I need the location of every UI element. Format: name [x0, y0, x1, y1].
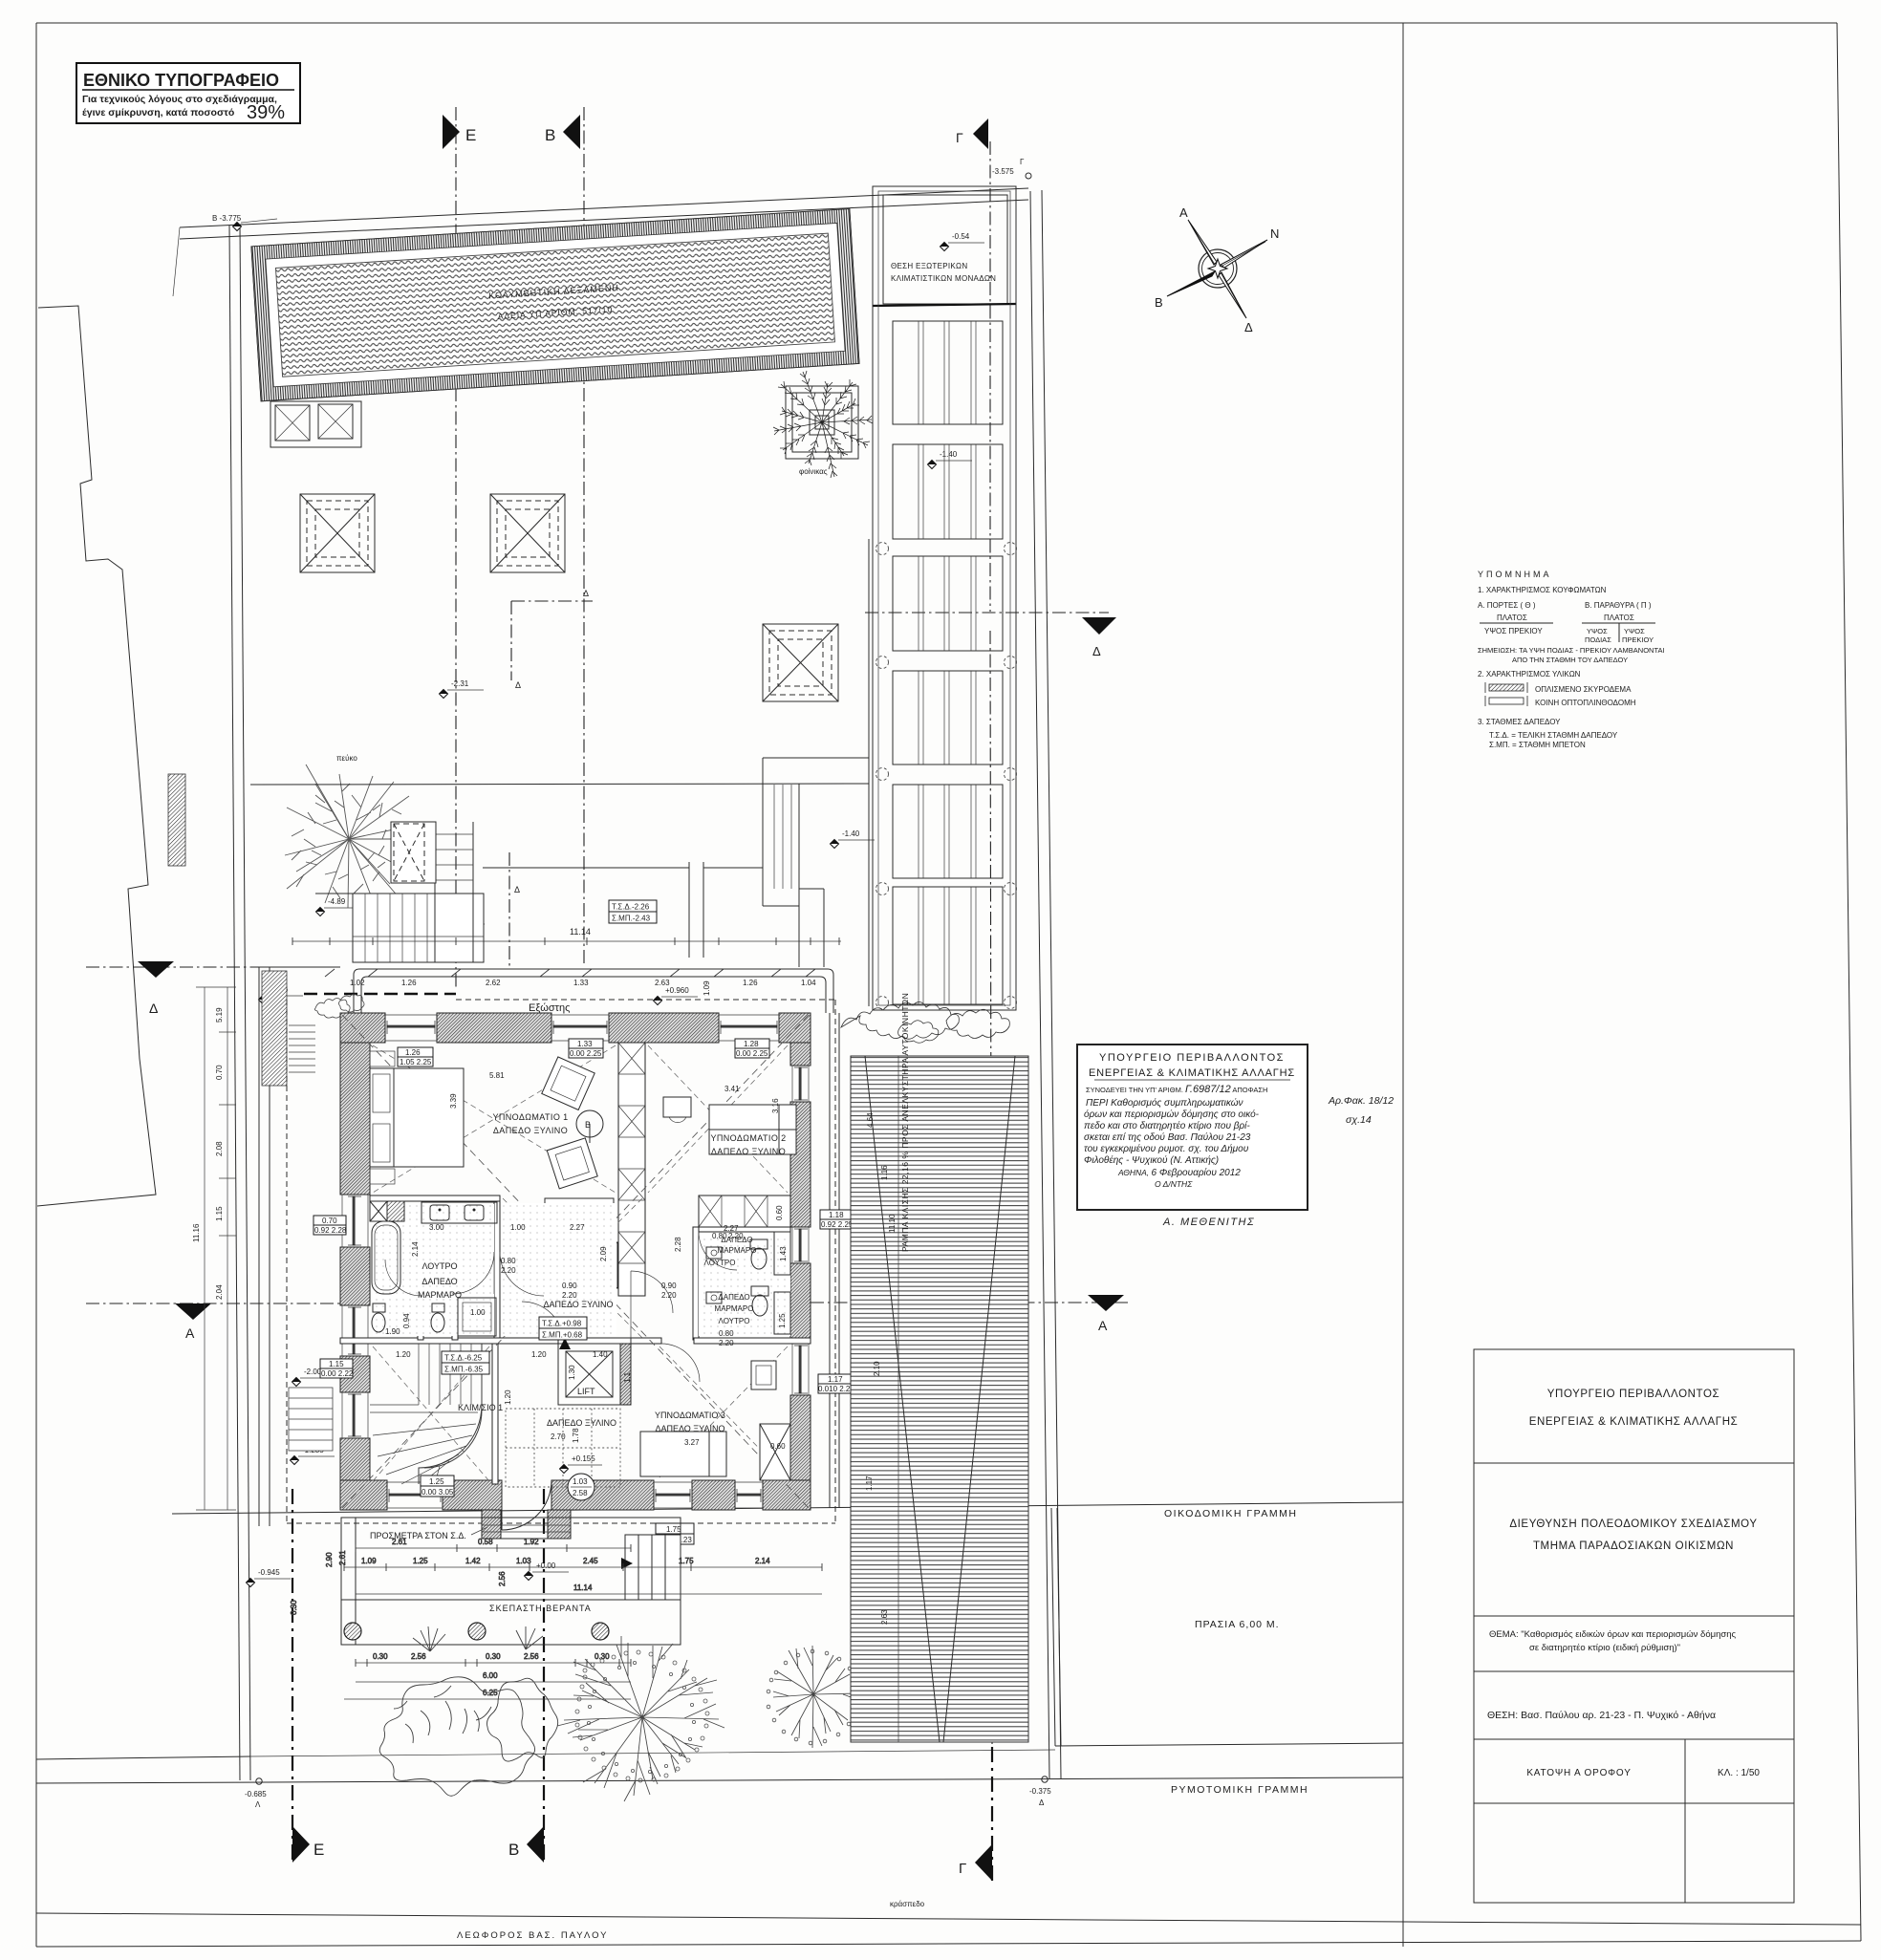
svg-text:0.60: 0.60	[775, 1205, 784, 1220]
svg-text:0.80: 0.80	[719, 1329, 734, 1338]
svg-text:2.10: 2.10	[873, 1361, 881, 1376]
svg-text:Ο Δ/ΝΤΗΣ: Ο Δ/ΝΤΗΣ	[1155, 1179, 1193, 1189]
svg-text:Αρ.Φακ. 18/12: Αρ.Φακ. 18/12	[1328, 1095, 1394, 1107]
svg-text:0.90: 0.90	[562, 1282, 577, 1290]
svg-text:1.43: 1.43	[779, 1246, 788, 1261]
svg-text:Α. ΜΕΘΕΝΙΤΗΣ: Α. ΜΕΘΕΝΙΤΗΣ	[1162, 1217, 1255, 1228]
svg-text:1.18: 1.18	[829, 1211, 844, 1219]
svg-text:Δ: Δ	[149, 1001, 158, 1016]
svg-text:6.00: 6.00	[483, 1671, 498, 1680]
svg-text:ΠΡΟΣΜΕΤΡΑ ΣΤΟΝ Σ.Δ.: ΠΡΟΣΜΕΤΡΑ ΣΤΟΝ Σ.Δ.	[370, 1531, 466, 1540]
svg-text:Δ: Δ	[583, 589, 589, 598]
svg-text:Λ: Λ	[255, 1800, 261, 1809]
svg-text:2.63: 2.63	[655, 979, 670, 987]
svg-text:LIFT: LIFT	[577, 1387, 595, 1396]
svg-text:ΕΝΕΡΓΕΙΑΣ & ΚΛΙΜΑΤΙΚΗΣ ΑΛΛΑΓΗΣ: ΕΝΕΡΓΕΙΑΣ & ΚΛΙΜΑΤΙΚΗΣ ΑΛΛΑΓΗΣ	[1089, 1067, 1295, 1079]
svg-text:2.61: 2.61	[392, 1538, 407, 1546]
svg-text:ΥΠΟΥΡΓΕΙΟ ΠΕΡΙΒΑΛΛΟΝΤΟΣ: ΥΠΟΥΡΓΕΙΟ ΠΕΡΙΒΑΛΛΟΝΤΟΣ	[1099, 1052, 1285, 1064]
svg-text:+0.960: +0.960	[665, 986, 689, 995]
svg-text:σχ.14: σχ.14	[1346, 1114, 1372, 1126]
svg-text:2.90: 2.90	[325, 1552, 334, 1567]
svg-text:-4.89: -4.89	[328, 897, 346, 906]
svg-text:11.16: 11.16	[192, 1223, 201, 1242]
svg-text:ΚΛΙΜΑΤΙΣΤΙΚΩΝ ΜΟΝΑΔΩΝ: ΚΛΙΜΑΤΙΣΤΙΚΩΝ ΜΟΝΑΔΩΝ	[891, 274, 996, 283]
svg-text:-3.575: -3.575	[992, 167, 1014, 176]
svg-text:0.80: 0.80	[501, 1257, 516, 1265]
svg-text:2.20: 2.20	[661, 1291, 677, 1300]
svg-text:2.56: 2.56	[411, 1652, 426, 1661]
svg-text:Δ: Δ	[515, 680, 521, 690]
svg-text:2.04: 2.04	[215, 1284, 224, 1300]
svg-text:ΔΑΠΕΔΟ ΞΥΛΙΝΟ: ΔΑΠΕΔΟ ΞΥΛΙΝΟ	[543, 1300, 613, 1309]
svg-text:ΜΑΡΜΑΡΟ: ΜΑΡΜΑΡΟ	[715, 1304, 754, 1313]
svg-text:Β -3.775: Β -3.775	[212, 214, 242, 223]
svg-text:39%: 39%	[247, 102, 285, 123]
svg-text:3.27: 3.27	[684, 1438, 700, 1447]
svg-text:ΟΙΚΟΔΟΜΙΚΗ ΓΡΑΜΜΗ: ΟΙΚΟΔΟΜΙΚΗ ΓΡΑΜΜΗ	[1164, 1508, 1297, 1519]
svg-text:0.58: 0.58	[478, 1538, 493, 1546]
svg-text:0.00 2.25: 0.00 2.25	[570, 1049, 602, 1058]
svg-text:ΥΠΝΟΔΩΜΑΤΙΟ 1: ΥΠΝΟΔΩΜΑΤΙΟ 1	[492, 1112, 568, 1122]
svg-text:2.62: 2.62	[486, 979, 501, 987]
svg-text:1.17: 1.17	[828, 1375, 843, 1384]
svg-text:0.70: 0.70	[322, 1217, 337, 1225]
svg-text:2.61: 2.61	[338, 1550, 347, 1565]
svg-text:ΥΠΝΟΔΩΜΑΤΙΟ 2: ΥΠΝΟΔΩΜΑΤΙΟ 2	[710, 1133, 786, 1143]
svg-text:2.20: 2.20	[728, 1232, 744, 1240]
svg-text:1.30: 1.30	[568, 1365, 576, 1380]
svg-text:ΛΟΥΤΡΟ: ΛΟΥΤΡΟ	[704, 1259, 736, 1267]
svg-text:3. ΣΤΑΘΜΕΣ ΔΑΠΕΔΟΥ: 3. ΣΤΑΘΜΕΣ ΔΑΠΕΔΟΥ	[1478, 718, 1561, 726]
svg-text:ΣΥΝΟΔΕΥΕΙ ΤΗΝ ΥΠ' ΑΡΙΘΜ. Γ.698: ΣΥΝΟΔΕΥΕΙ ΤΗΝ ΥΠ' ΑΡΙΘΜ. Γ.6987/12 ΑΠΟΦΑ…	[1086, 1084, 1267, 1095]
svg-text:2.45: 2.45	[583, 1557, 598, 1565]
svg-text:Δ: Δ	[1092, 644, 1101, 658]
svg-text:2.09: 2.09	[599, 1246, 608, 1261]
svg-text:όρων και περιορισμών δόμησης σ: όρων και περιορισμών δόμησης στο οικό-	[1084, 1109, 1260, 1120]
svg-text:1.25: 1.25	[429, 1477, 444, 1486]
svg-text:ΑΘΗΝΑ, 6 Φεβρουαρίου 2012: ΑΘΗΝΑ, 6 Φεβρουαρίου 2012	[1117, 1167, 1241, 1178]
svg-text:ΥΨΟΣ ΠΡΕΚΙΟΥ: ΥΨΟΣ ΠΡΕΚΙΟΥ	[1484, 627, 1543, 635]
svg-text:ΘΕΣΗ ΕΞΩΤΕΡΙΚΩΝ: ΘΕΣΗ ΕΞΩΤΕΡΙΚΩΝ	[891, 262, 967, 270]
svg-text:Β: Β	[545, 126, 555, 144]
svg-text:Σ.ΜΠ. = ΣΤΑΘΜΗ ΜΠΕΤΟΝ: Σ.ΜΠ. = ΣΤΑΘΜΗ ΜΠΕΤΟΝ	[1489, 741, 1586, 749]
svg-text:Τ.Σ.Δ.-2.26: Τ.Σ.Δ.-2.26	[612, 903, 650, 912]
svg-text:Ε: Ε	[313, 1841, 324, 1859]
svg-text:πεύκο: πεύκο	[336, 754, 357, 763]
svg-text:ΔΑΠΕΔΟ ΞΥΛΙΝΟ: ΔΑΠΕΔΟ ΞΥΛΙΝΟ	[711, 1147, 786, 1156]
svg-text:1.09: 1.09	[361, 1557, 377, 1565]
svg-text:ΕΘΝΙΚΟ ΤΥΠΟΓΡΑΦΕΙΟ: ΕΘΝΙΚΟ ΤΥΠΟΓΡΑΦΕΙΟ	[83, 71, 279, 90]
svg-text:ΔΙΕΥΘΥΝΣΗ ΠΟΛΕΟΔΟΜΙΚΟΥ ΣΧΕΔΙΑΣ: ΔΙΕΥΘΥΝΣΗ ΠΟΛΕΟΔΟΜΙΚΟΥ ΣΧΕΔΙΑΣΜΟΥ	[1509, 1518, 1757, 1530]
svg-text:+0.155: +0.155	[572, 1454, 595, 1463]
svg-text:1.20: 1.20	[504, 1389, 512, 1405]
svg-text:Τ.Σ.Δ. = ΤΕΛΙΚΗ ΣΤΑΘΜΗ ΔΑΠΕ: Τ.Σ.Δ. = ΤΕΛΙΚΗ ΣΤΑΘΜΗ ΔΑΠΕΔΟΥ	[1489, 731, 1618, 740]
svg-text:-2.31: -2.31	[451, 679, 469, 688]
svg-text:0.00 2.22: 0.00 2.22	[321, 1369, 354, 1378]
svg-text:ΚΛΙΜ/ΣΙΟ 1: ΚΛΙΜ/ΣΙΟ 1	[458, 1403, 503, 1412]
svg-text:ΘΕΜΑ: "Καθορισμός ειδικών όρ: ΘΕΜΑ: "Καθορισμός ειδικών όρων και περιο…	[1489, 1629, 1737, 1640]
svg-text:2.27: 2.27	[570, 1223, 585, 1232]
svg-text:Εξώστης: Εξώστης	[529, 1002, 570, 1014]
svg-text:ΥΨΟΣ: ΥΨΟΣ	[1624, 627, 1645, 635]
svg-text:2.63: 2.63	[880, 1609, 889, 1625]
svg-text:3.16: 3.16	[771, 1098, 780, 1113]
svg-text:ΛΕΩΦΟΡΟΣ ΒΑΣ. ΠΑΥΛΟΥ: ΛΕΩΦΟΡΟΣ ΒΑΣ. ΠΑΥΛΟΥ	[457, 1930, 609, 1941]
svg-text:2.56: 2.56	[524, 1652, 539, 1661]
svg-text:3.41: 3.41	[724, 1085, 740, 1093]
svg-text:1.26: 1.26	[401, 979, 417, 987]
svg-text:Δ: Δ	[514, 885, 520, 894]
svg-text:2.58: 2.58	[573, 1489, 588, 1497]
svg-text:0.94: 0.94	[402, 1313, 411, 1328]
svg-text:ΠΡΕΚΙΟΥ: ΠΡΕΚΙΟΥ	[1622, 635, 1654, 644]
svg-text:Α: Α	[1098, 1318, 1108, 1333]
svg-text:0.30: 0.30	[486, 1652, 501, 1661]
svg-text:+0.00: +0.00	[536, 1562, 556, 1570]
svg-text:1.09: 1.09	[703, 980, 711, 996]
svg-text:1.78: 1.78	[572, 1428, 580, 1443]
svg-text:5.81: 5.81	[489, 1071, 505, 1080]
svg-text:11.14: 11.14	[573, 1583, 593, 1592]
svg-text:ΠΡΑΣΙΑ 6,00 Μ.: ΠΡΑΣΙΑ 6,00 Μ.	[1195, 1619, 1280, 1630]
svg-text:Γ: Γ	[959, 1861, 966, 1877]
svg-text:Β. ΠΑΡΑΘΥΡΑ ( Π ): Β. ΠΑΡΑΘΥΡΑ ( Π )	[1585, 601, 1652, 610]
svg-text:Ν: Ν	[1270, 226, 1279, 241]
svg-text:2. ΧΑΡΑΚΤΗΡΙΣΜΟΣ ΥΛΙΚΩΝ: 2. ΧΑΡΑΚΤΗΡΙΣΜΟΣ ΥΛΙΚΩΝ	[1478, 670, 1581, 678]
svg-text:ΜΑΡΜΑΡΟ: ΜΑΡΜΑΡΟ	[418, 1290, 462, 1300]
svg-text:ΡΑΜΠΑ ΚΛΙΣΗΣ 22,16 % ΠΡΟΣ ΑΝΕΛ: ΡΑΜΠΑ ΚΛΙΣΗΣ 22,16 % ΠΡΟΣ ΑΝΕΛΚΥΣΤΗΡΑ ΑΥ…	[900, 993, 910, 1252]
svg-text:0.92 2.28: 0.92 2.28	[314, 1226, 347, 1235]
svg-text:0.30: 0.30	[595, 1652, 610, 1661]
svg-text:Ε: Ε	[465, 126, 476, 144]
svg-text:0.80: 0.80	[712, 1232, 727, 1240]
svg-text:1.20: 1.20	[396, 1350, 411, 1359]
svg-text:1.40: 1.40	[593, 1350, 608, 1359]
svg-text:1.28: 1.28	[744, 1040, 759, 1048]
svg-text:ΟΠΛΙΣΜΕΝΟ ΣΚΥΡΟΔΕΜΑ: ΟΠΛΙΣΜΕΝΟ ΣΚΥΡΟΔΕΜΑ	[1535, 685, 1632, 694]
svg-text:ΔΑΠΕΔΟ: ΔΑΠΕΔΟ	[422, 1277, 457, 1286]
svg-text:Β: Β	[508, 1841, 519, 1859]
svg-text:φοίνικας: φοίνικας	[799, 467, 828, 476]
svg-text:1.15: 1.15	[215, 1206, 224, 1221]
svg-text:2.08: 2.08	[215, 1141, 224, 1156]
svg-text:ΠΛΑΤΟΣ: ΠΛΑΤΟΣ	[1497, 614, 1527, 622]
svg-text:2.14: 2.14	[411, 1241, 420, 1257]
svg-text:0.00 2.25: 0.00 2.25	[736, 1049, 768, 1058]
svg-text:Σ.ΜΠ.-2.43: Σ.ΜΠ.-2.43	[612, 915, 651, 923]
svg-text:πεδο και στο διατηρητέο κτίριο: πεδο και στο διατηρητέο κτίριο που βρί-	[1084, 1120, 1250, 1131]
svg-text:-0.54: -0.54	[952, 232, 970, 241]
svg-text:2.70: 2.70	[551, 1432, 566, 1441]
svg-text:ΥΠΟΜΝΗΜΑ: ΥΠΟΜΝΗΜΑ	[1478, 570, 1552, 579]
svg-text:Γ: Γ	[956, 130, 963, 145]
svg-text:Α: Α	[1179, 205, 1188, 220]
svg-text:ΚΑΤΟΨΗ Α ΟΡΟΦΟΥ: ΚΑΤΟΨΗ Α ΟΡΟΦΟΥ	[1526, 1768, 1631, 1778]
svg-text:11.14: 11.14	[570, 927, 591, 937]
svg-text:ΘΕΣΗ: Βασ. Παύλου αρ. 21-23: ΘΕΣΗ: Βασ. Παύλου αρ. 21-23 - Π. Ψυχικό …	[1487, 1710, 1716, 1721]
svg-text:1.26: 1.26	[405, 1048, 421, 1057]
svg-text:1.00: 1.00	[510, 1223, 526, 1232]
svg-text:Γ: Γ	[1020, 158, 1025, 166]
svg-text:Α. ΠΟΡΤΕΣ ( Θ ): Α. ΠΟΡΤΕΣ ( Θ )	[1478, 601, 1536, 610]
svg-text:του εγκεκριμένου ρυμοτ. σχ. το: του εγκεκριμένου ρυμοτ. σχ. του Δήμου	[1084, 1143, 1249, 1154]
svg-text:2.28: 2.28	[674, 1237, 682, 1252]
svg-text:ΕΝΕΡΓΕΙΑΣ & ΚΛΙΜΑΤΙΚΗΣ ΑΛΛΑΓΗΣ: ΕΝΕΡΓΕΙΑΣ & ΚΛΙΜΑΤΙΚΗΣ ΑΛΛΑΓΗΣ	[1529, 1416, 1739, 1428]
svg-text:1.42: 1.42	[465, 1557, 481, 1565]
svg-text:ΥΠΝΟΔΩΜΑΤΙΟ 3: ΥΠΝΟΔΩΜΑΤΙΟ 3	[655, 1411, 725, 1420]
svg-text:-0.375: -0.375	[1029, 1787, 1051, 1796]
svg-text:2.20: 2.20	[501, 1266, 516, 1275]
svg-text:1.17: 1.17	[865, 1475, 874, 1491]
svg-text:1.03: 1.03	[573, 1477, 588, 1486]
svg-text:0.00 3.05: 0.00 3.05	[422, 1488, 454, 1497]
svg-text:1.02: 1.02	[350, 979, 365, 987]
svg-text:1. ΧΑΡΑΚΤΗΡΙΣΜΟΣ ΚΟΥΦΩΜΑΤΩΝ: 1. ΧΑΡΑΚΤΗΡΙΣΜΟΣ ΚΟΥΦΩΜΑΤΩΝ	[1478, 586, 1607, 594]
svg-text:2.20: 2.20	[562, 1291, 577, 1300]
svg-text:Σ.ΜΠ.+0.68: Σ.ΜΠ.+0.68	[542, 1331, 583, 1340]
svg-text:ΔΑΠΕΔΟ ΞΥΛΙΝΟ: ΔΑΠΕΔΟ ΞΥΛΙΝΟ	[547, 1418, 616, 1428]
svg-text:1.75: 1.75	[679, 1557, 694, 1565]
svg-text:ΥΠΟΥΡΓΕΙΟ ΠΕΡΙΒΑΛΛΟΝΤΟΣ: ΥΠΟΥΡΓΕΙΟ ΠΕΡΙΒΑΛΛΟΝΤΟΣ	[1547, 1389, 1719, 1400]
svg-text:Τ.Σ.Δ.-6.25: Τ.Σ.Δ.-6.25	[444, 1354, 483, 1363]
svg-text:ΜΑΡΜΑΡΟ: ΜΑΡΜΑΡΟ	[718, 1246, 757, 1255]
svg-text:1.16: 1.16	[880, 1165, 889, 1180]
svg-text:1.92: 1.92	[524, 1538, 539, 1546]
svg-text:ΛΟΥΤΡΟ: ΛΟΥΤΡΟ	[422, 1261, 457, 1271]
svg-text:3.39: 3.39	[449, 1093, 458, 1109]
svg-text:1.04: 1.04	[801, 979, 816, 987]
svg-text:σκεται επί της οδού Βασ. Παύλο: σκεται επί της οδού Βασ. Παύλου 21-23	[1084, 1131, 1251, 1143]
svg-text:Β: Β	[1155, 295, 1163, 310]
svg-text:ΣΚΕΠΑΣΤΗ ΒΕΡΑΝΤΑ: ΣΚΕΠΑΣΤΗ ΒΕΡΑΝΤΑ	[489, 1604, 592, 1613]
svg-text:-1.40: -1.40	[842, 829, 860, 838]
svg-text:ΚΟΙΝΗ ΟΠΤΟΠΛΙΝΘΟΔΟΜΗ: ΚΟΙΝΗ ΟΠΤΟΠΛΙΝΘΟΔΟΜΗ	[1535, 699, 1636, 707]
svg-text:1.00: 1.00	[470, 1308, 486, 1317]
svg-text:Τ.Σ.Δ.+0.98: Τ.Σ.Δ.+0.98	[542, 1320, 582, 1328]
svg-text:Φιλοθέης - Ψυχικού (Ν. Αττικής: Φιλοθέης - Ψυχικού (Ν. Αττικής)	[1084, 1154, 1219, 1166]
svg-text:ΠΕΡΙ Καθορισμός συμπληρωματικώ: ΠΕΡΙ Καθορισμός συμπληρωματικών	[1086, 1097, 1243, 1109]
svg-text:0.30: 0.30	[290, 1600, 298, 1615]
svg-text:-0.685: -0.685	[245, 1790, 267, 1798]
svg-text:1.33: 1.33	[573, 979, 589, 987]
svg-text:ΚΛ. : 1/50: ΚΛ. : 1/50	[1718, 1768, 1760, 1778]
svg-text:5.19: 5.19	[215, 1007, 224, 1023]
svg-text:11.10: 11.10	[888, 1214, 897, 1233]
svg-text:έγινε σμίκρυνση, κατά ποσοστό: έγινε σμίκρυνση, κατά ποσοστό	[82, 107, 234, 118]
svg-text:0.010 2.23: 0.010 2.23	[818, 1385, 854, 1393]
svg-text:ΔΑΠΕΔΟ ΞΥΛΙΝΟ: ΔΑΠΕΔΟ ΞΥΛΙΝΟ	[493, 1126, 568, 1135]
svg-text:4.64: 4.64	[866, 1112, 875, 1128]
svg-text:ΤΜΗΜΑ ΠΑΡΑΔΟΣΙΑΚΩΝ ΟΙΚΙΣΜΩΝ: ΤΜΗΜΑ ΠΑΡΑΔΟΣΙΑΚΩΝ ΟΙΚΙΣΜΩΝ	[1533, 1540, 1734, 1552]
svg-text:ΣΗΜΕΙΩΣΗ: ΤΑ ΥΨΗ ΠΟΔΙΑΣ - ΠΡΕΚ: ΣΗΜΕΙΩΣΗ: ΤΑ ΥΨΗ ΠΟΔΙΑΣ - ΠΡΕΚΙΟΥ ΛΑΜΒΑΝ…	[1478, 646, 1665, 655]
svg-text:1.15: 1.15	[329, 1360, 344, 1368]
svg-text:ΛΟΥΤΡΟ: ΛΟΥΤΡΟ	[719, 1317, 750, 1325]
svg-text:Σ.ΜΠ.-6.35: Σ.ΜΠ.-6.35	[444, 1366, 484, 1374]
svg-text:1.25: 1.25	[778, 1313, 787, 1328]
svg-text:ΔΑΠΕΔΟ: ΔΑΠΕΔΟ	[718, 1293, 749, 1302]
svg-text:1.1: 1.1	[623, 1371, 632, 1383]
svg-text:0.70: 0.70	[215, 1065, 224, 1080]
svg-text:ΥΨΟΣ: ΥΨΟΣ	[1587, 627, 1608, 635]
svg-text:-0.945: -0.945	[258, 1568, 280, 1577]
svg-text:0.60: 0.60	[770, 1442, 786, 1451]
svg-text:ΑΠΟ ΤΗΝ ΣΤΑΘΜΗ ΤΟΥ ΔΑΠΕΔΟΥ: ΑΠΟ ΤΗΝ ΣΤΑΘΜΗ ΤΟΥ ΔΑΠΕΔΟΥ	[1512, 656, 1628, 664]
svg-text:ΡΥΜΟΤΟΜΙΚΗ ΓΡΑΜΜΗ: ΡΥΜΟΤΟΜΙΚΗ ΓΡΑΜΜΗ	[1171, 1784, 1308, 1796]
svg-text:1.25: 1.25	[413, 1557, 428, 1565]
svg-text:3.00: 3.00	[429, 1223, 444, 1232]
svg-text:0.90: 0.90	[661, 1282, 677, 1290]
svg-text:1.26: 1.26	[743, 979, 758, 987]
svg-text:1.20: 1.20	[531, 1350, 547, 1359]
svg-text:1.05 2.25: 1.05 2.25	[400, 1058, 432, 1066]
svg-text:1.90: 1.90	[385, 1327, 400, 1336]
svg-text:σε διατηρητέο κτίριο (ειδική ρ: σε διατηρητέο κτίριο (ειδική ρύθμιση)"	[1529, 1643, 1680, 1653]
svg-text:Δ: Δ	[1244, 320, 1253, 334]
svg-text:ΠΛΑΤΟΣ: ΠΛΑΤΟΣ	[1604, 614, 1634, 622]
svg-text:-1.40: -1.40	[940, 450, 958, 459]
svg-text:Α: Α	[185, 1325, 195, 1341]
svg-text:ΠΟΔΙΑΣ: ΠΟΔΙΑΣ	[1585, 635, 1611, 644]
svg-text:ΔΑΠΕΔΟ ΞΥΛΙΝΟ: ΔΑΠΕΔΟ ΞΥΛΙΝΟ	[655, 1424, 724, 1433]
svg-text:2.56: 2.56	[498, 1571, 507, 1586]
svg-text:κράσπεδο: κράσπεδο	[890, 1900, 925, 1908]
svg-text:1.33: 1.33	[577, 1040, 593, 1048]
svg-text:2.20: 2.20	[719, 1339, 734, 1347]
svg-text:0.30: 0.30	[373, 1652, 388, 1661]
svg-text:1.75: 1.75	[666, 1525, 681, 1534]
svg-text:Δ: Δ	[1039, 1798, 1045, 1807]
svg-text:0.92 2.25: 0.92 2.25	[821, 1220, 854, 1229]
svg-text:Β: Β	[585, 1120, 591, 1130]
svg-text:2.14: 2.14	[755, 1557, 770, 1565]
